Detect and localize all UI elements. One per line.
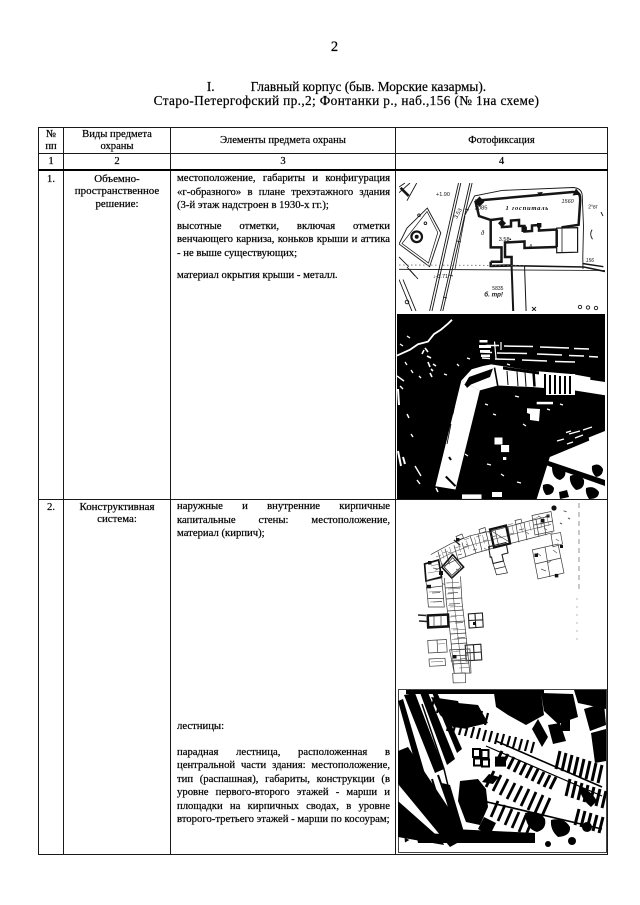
svg-text:↓-3.71: ↓-3.71 xyxy=(433,274,448,280)
svg-text:б. тр!: б. тр! xyxy=(484,292,503,299)
svg-text:156: 156 xyxy=(586,258,595,264)
svg-text:2085: 2085 xyxy=(475,205,488,211)
svg-text:1560: 1560 xyxy=(562,199,575,205)
svg-text:1 госпиталь: 1 госпиталь xyxy=(506,205,549,212)
svg-text:А: А xyxy=(528,244,533,250)
svg-text:д: д xyxy=(481,231,485,237)
svg-text:3.58▪: 3.58▪ xyxy=(499,237,512,243)
svg-text:2°вт: 2°вт xyxy=(588,205,598,211)
svg-text:+1.90: +1.90 xyxy=(436,192,450,198)
